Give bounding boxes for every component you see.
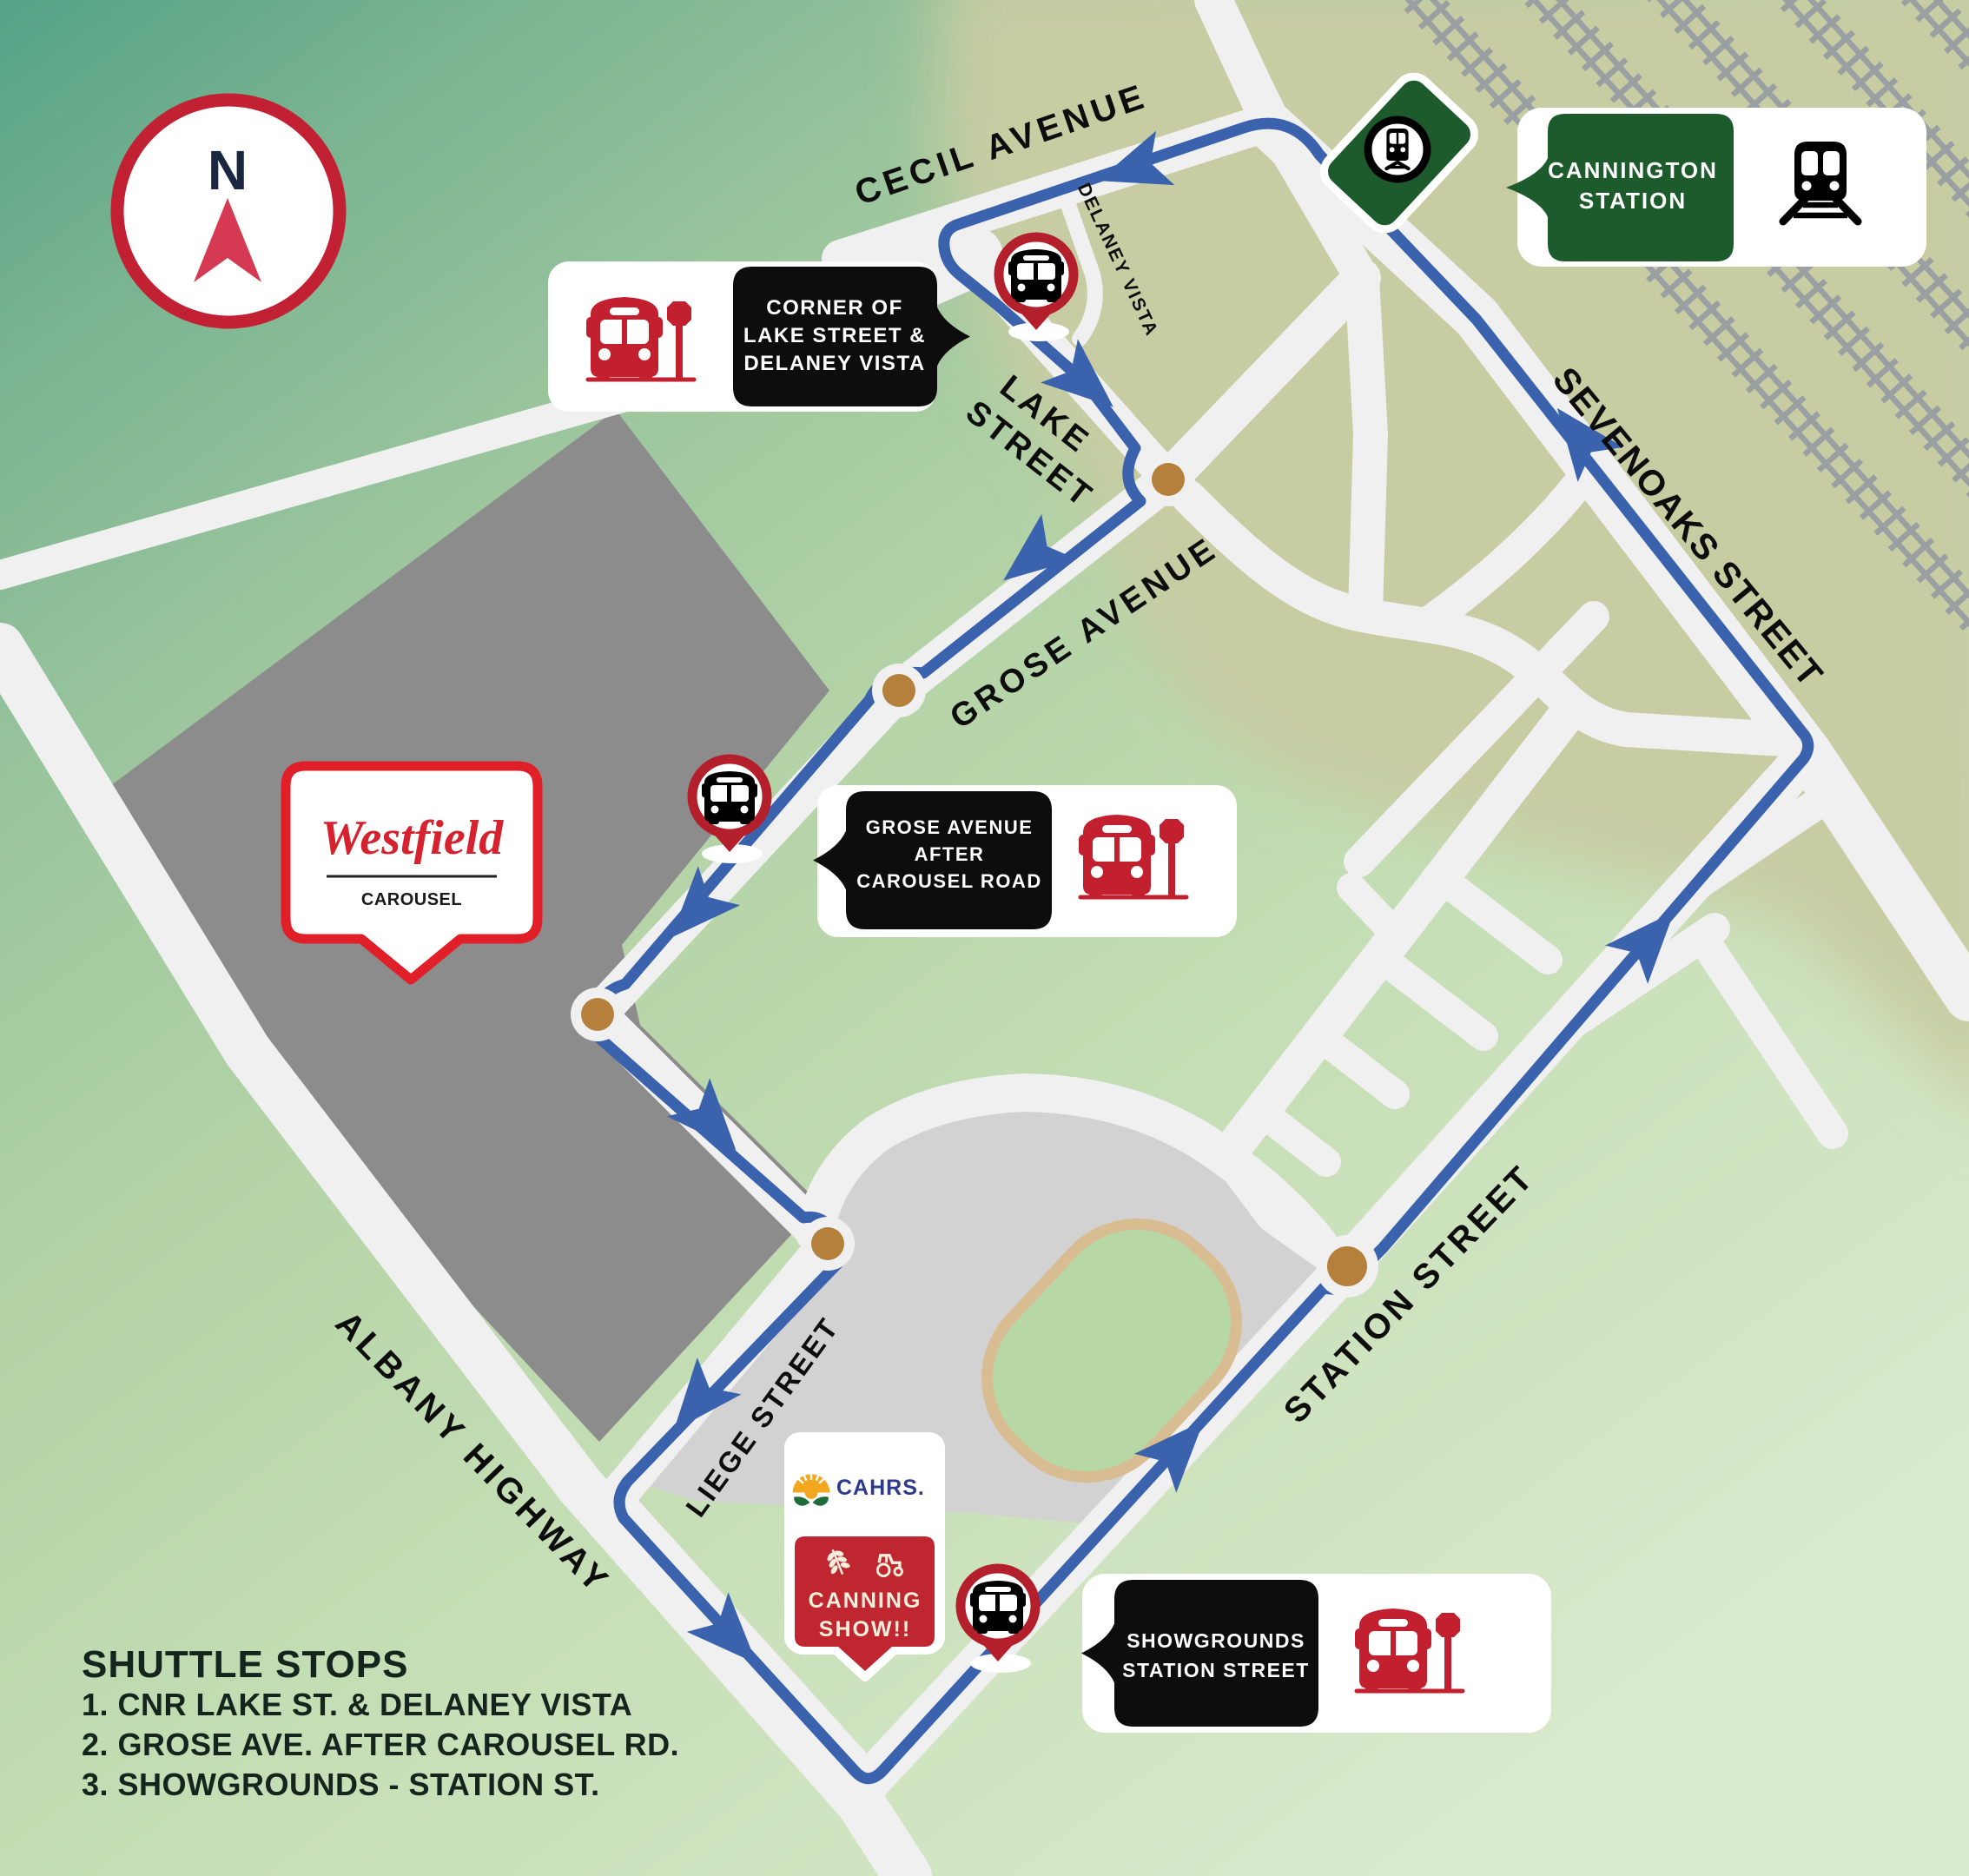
- svg-text:CAHRS.: CAHRS.: [836, 1476, 925, 1500]
- svg-text:LAKE STREET &: LAKE STREET &: [743, 324, 926, 347]
- svg-text:SHOWGROUNDS: SHOWGROUNDS: [1127, 1629, 1305, 1652]
- svg-text:CAROUSEL ROAD: CAROUSEL ROAD: [856, 870, 1041, 892]
- svg-text:3. SHOWGROUNDS - STATION ST.: 3. SHOWGROUNDS - STATION ST.: [82, 1767, 600, 1802]
- svg-text:2. GROSE AVE. AFTER CAROUSEL R: 2. GROSE AVE. AFTER CAROUSEL RD.: [82, 1727, 679, 1762]
- svg-text:DELANEY VISTA: DELANEY VISTA: [743, 352, 925, 375]
- svg-text:CAROUSEL: CAROUSEL: [361, 890, 462, 909]
- svg-text:CANNINGTON: CANNINGTON: [1548, 157, 1718, 183]
- svg-text:GROSE AVENUE: GROSE AVENUE: [866, 816, 1034, 838]
- svg-text:CORNER OF: CORNER OF: [766, 296, 903, 320]
- svg-text:1. CNR LAKE ST. & DELANEY VIST: 1. CNR LAKE ST. & DELANEY VISTA: [82, 1687, 632, 1722]
- svg-text:STATION STREET: STATION STREET: [1122, 1659, 1310, 1681]
- svg-text:SHUTTLE STOPS: SHUTTLE STOPS: [82, 1643, 408, 1686]
- svg-text:CANNING: CANNING: [809, 1589, 922, 1613]
- svg-text:SHOW!!: SHOW!!: [819, 1617, 911, 1641]
- svg-text:N: N: [208, 139, 248, 201]
- svg-text:STATION: STATION: [1579, 188, 1687, 214]
- svg-text:Westfield: Westfield: [320, 811, 504, 865]
- svg-text:AFTER: AFTER: [915, 843, 985, 865]
